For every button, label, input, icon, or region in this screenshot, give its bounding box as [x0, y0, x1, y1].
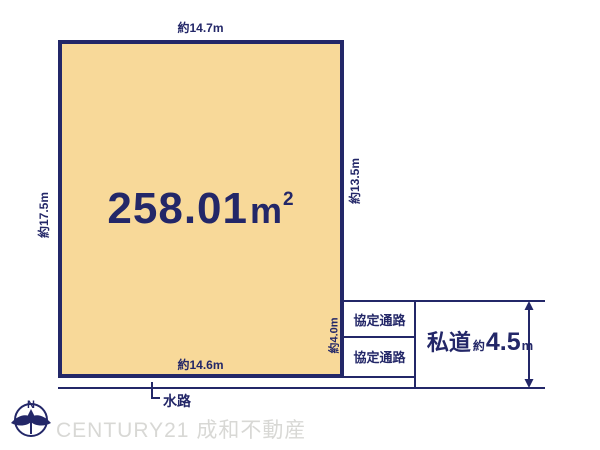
road-width-arrow-head-up: [525, 301, 534, 310]
waterway-label: 水路: [163, 391, 191, 411]
dimension-label-left: 約17.5m: [37, 185, 51, 245]
agreement-passage-lower-label: 協定通路: [345, 338, 414, 374]
dimension-label-top: 約14.7m: [158, 21, 243, 35]
diagram-linework: N: [0, 0, 600, 450]
dimension-label-right: 約13.5m: [348, 151, 362, 211]
dimension-label-inner-right: 約4.0m: [328, 312, 341, 360]
land-plot-diagram: 258.01m2 約14.7m 約17.5m 約13.5m 約4.0m 約14.…: [0, 0, 600, 450]
private-road-width-unit: m: [522, 339, 534, 352]
dimension-label-bottom: 約14.6m: [158, 358, 243, 372]
agreement-passage-upper-label: 協定通路: [345, 302, 414, 336]
road-width-arrow-head-down: [525, 379, 534, 388]
waterway-callout-bracket: [152, 382, 160, 398]
private-road-name: 私道: [427, 332, 471, 354]
private-road-width-value: 4.5: [486, 330, 521, 355]
private-road-label: 私道 約 4.5 m: [417, 330, 543, 364]
compass-north-icon: N: [11, 399, 51, 436]
private-road-approx: 約: [473, 340, 485, 352]
